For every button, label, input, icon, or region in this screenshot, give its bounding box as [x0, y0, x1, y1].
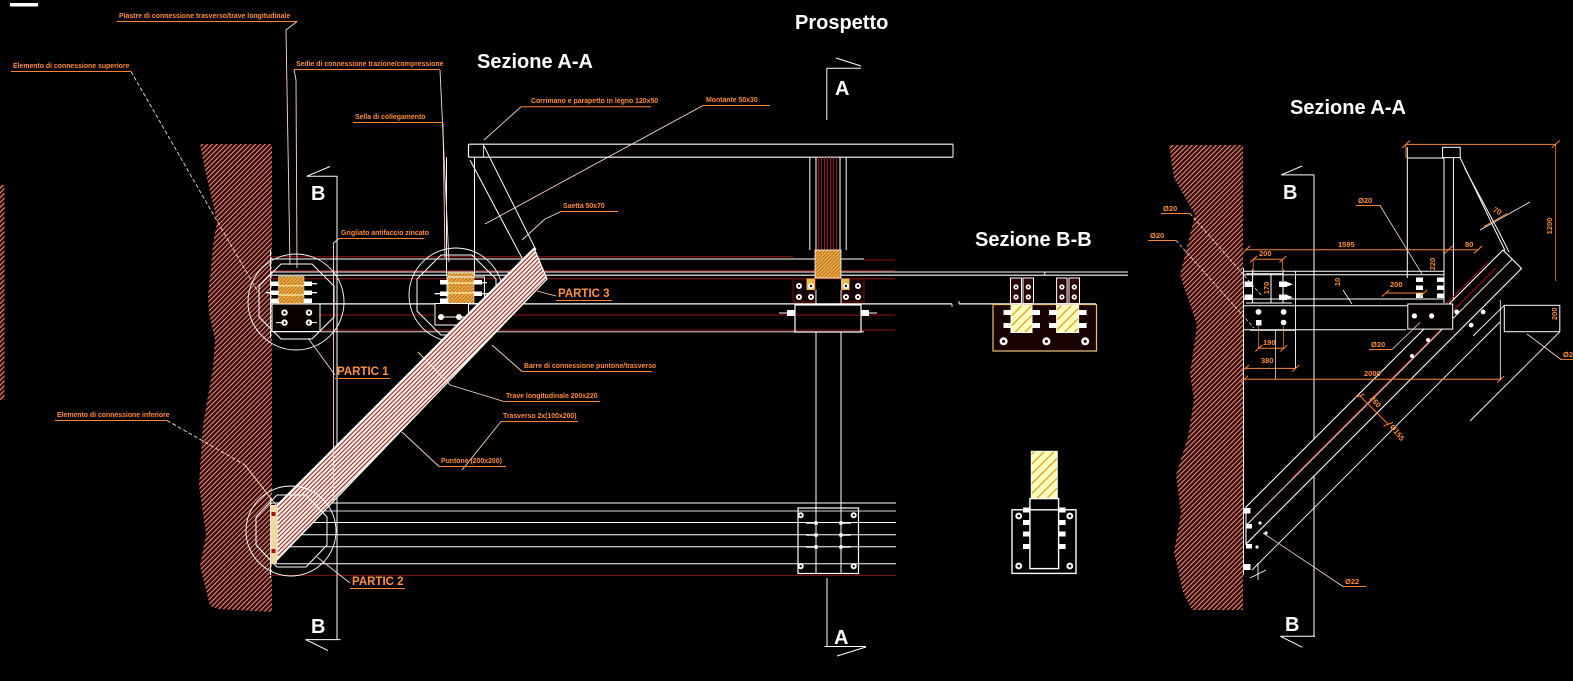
svg-text:10: 10	[1333, 278, 1342, 286]
svg-text:Elemento di connessione superi: Elemento di connessione superiore	[13, 63, 130, 70]
svg-text:200: 200	[1390, 280, 1403, 289]
svg-text:Piastre di connessione trasver: Piastre di connessione trasverso/trave l…	[119, 13, 290, 20]
svg-text:190: 190	[1263, 338, 1276, 347]
svg-text:B: B	[1283, 182, 1297, 204]
svg-text:Sedie di connessione trazione/: Sedie di connessione trazione/compressio…	[296, 61, 444, 68]
svg-text:PARTIC 3: PARTIC 3	[558, 288, 610, 300]
svg-text:Ø22: Ø22	[1345, 577, 1359, 586]
svg-text:Ø20: Ø20	[1163, 204, 1177, 213]
svg-text:80: 80	[1465, 240, 1473, 249]
svg-text:Sella di collegamento: Sella di collegamento	[355, 114, 425, 121]
svg-text:Ø2: Ø2	[1563, 350, 1573, 359]
svg-text:Saetta 50x70: Saetta 50x70	[563, 203, 605, 210]
svg-text:Grigliato antifaccio zincato: Grigliato antifaccio zincato	[341, 230, 429, 237]
svg-text:B: B	[311, 616, 325, 638]
svg-text:170: 170	[1262, 282, 1271, 295]
svg-text:220: 220	[1428, 258, 1437, 271]
svg-text:Ø20: Ø20	[1358, 196, 1372, 205]
svg-text:B: B	[311, 183, 325, 205]
svg-text:Ø20: Ø20	[1150, 231, 1164, 240]
svg-text:Trave longitudinale 200x220: Trave longitudinale 200x220	[506, 393, 598, 400]
svg-text:Barre di connessione puntone/t: Barre di connessione puntone/trasverso	[524, 363, 656, 370]
svg-text:A: A	[834, 627, 848, 649]
svg-text:1200: 1200	[1545, 218, 1554, 235]
svg-text:200: 200	[1259, 249, 1272, 258]
svg-text:B: B	[1285, 614, 1299, 636]
svg-text:1595: 1595	[1338, 240, 1355, 249]
svg-text:Sezione B-B: Sezione B-B	[975, 229, 1092, 251]
svg-text:Ø20: Ø20	[1371, 340, 1385, 349]
svg-text:PARTIC 1: PARTIC 1	[337, 366, 389, 378]
svg-text:Puntone (200x200): Puntone (200x200)	[441, 458, 502, 465]
svg-text:Sezione A-A: Sezione A-A	[477, 51, 593, 73]
svg-text:PARTIC 2: PARTIC 2	[352, 576, 404, 588]
svg-text:Prospetto: Prospetto	[795, 12, 888, 34]
svg-text:2000: 2000	[1364, 369, 1381, 378]
svg-text:380: 380	[1261, 356, 1274, 365]
svg-text:Montante 50x30: Montante 50x30	[706, 97, 758, 104]
svg-text:Trasverso 2x(100x200): Trasverso 2x(100x200)	[503, 413, 577, 420]
svg-text:200: 200	[1550, 307, 1559, 320]
svg-text:Corrimano e parapetto in legno: Corrimano e parapetto in legno 120x50	[531, 98, 658, 105]
svg-text:A: A	[835, 78, 849, 100]
svg-text:Elemento di connessione inferi: Elemento di connessione inferiore	[57, 412, 170, 419]
svg-text:Sezione A-A: Sezione A-A	[1290, 97, 1406, 119]
